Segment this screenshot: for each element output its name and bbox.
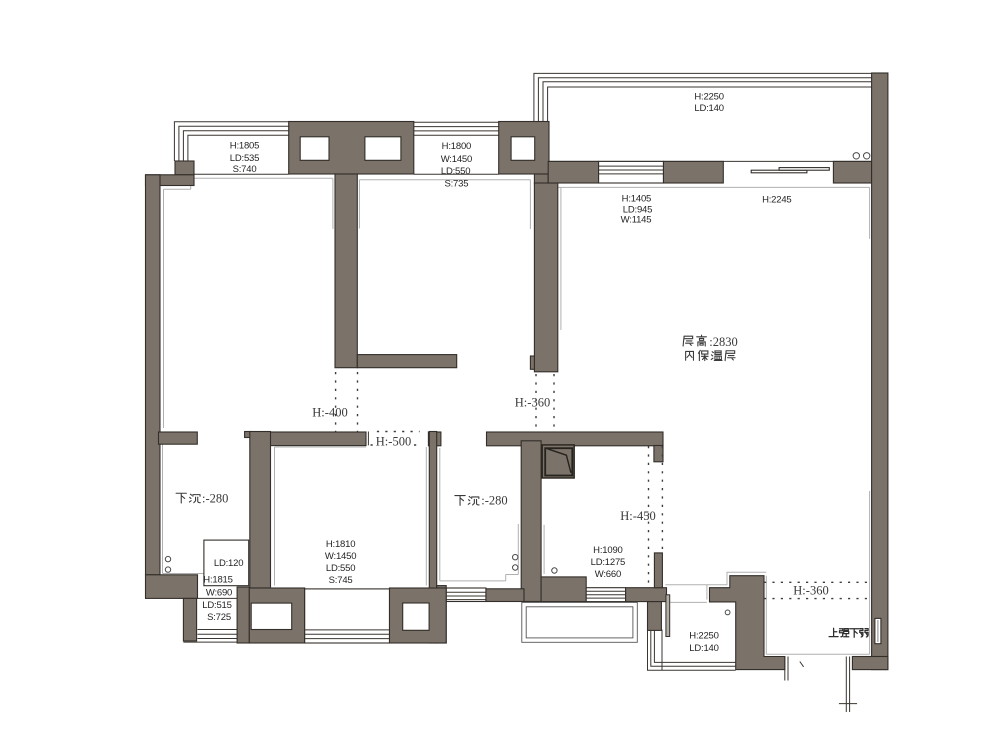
svg-text:LD:140: LD:140 <box>694 103 723 114</box>
svg-text:W:1450: W:1450 <box>325 551 356 562</box>
svg-text:H:-500: H:-500 <box>376 434 411 448</box>
svg-text:H:2250: H:2250 <box>694 92 723 103</box>
svg-text:H:2245: H:2245 <box>762 194 791 205</box>
svg-text:LD:1275: LD:1275 <box>591 557 626 568</box>
svg-text:LD:120: LD:120 <box>214 558 243 569</box>
svg-text:S:735: S:735 <box>444 178 468 189</box>
svg-text:LD:535: LD:535 <box>230 153 259 164</box>
svg-text:H:-400: H:-400 <box>312 406 347 420</box>
svg-text:LD:550: LD:550 <box>326 563 355 574</box>
svg-text:H:1090: H:1090 <box>593 545 622 556</box>
svg-text:H:-360: H:-360 <box>515 396 550 410</box>
svg-text:LD:515: LD:515 <box>202 600 231 611</box>
svg-text:S:725: S:725 <box>207 612 231 623</box>
svg-text:LD:550: LD:550 <box>441 166 470 177</box>
svg-text:H:1405: H:1405 <box>622 194 651 205</box>
svg-text:W:690: W:690 <box>206 587 232 598</box>
svg-text:W:1145: W:1145 <box>621 215 652 226</box>
svg-text::-280: :-280 <box>481 494 507 508</box>
svg-text:H:1805: H:1805 <box>230 141 259 152</box>
svg-text:LD:140: LD:140 <box>689 643 718 654</box>
svg-text:S:740: S:740 <box>233 164 257 175</box>
svg-text:W:660: W:660 <box>595 569 621 580</box>
svg-text:H:2250: H:2250 <box>689 631 718 642</box>
svg-text:H:1810: H:1810 <box>326 539 355 550</box>
svg-text:H:-360: H:-360 <box>793 583 828 597</box>
svg-text::2830: :2830 <box>709 335 737 349</box>
svg-text:H:1800: H:1800 <box>442 141 471 152</box>
svg-text:W:1450: W:1450 <box>441 154 472 165</box>
svg-text:H:-450: H:-450 <box>620 509 655 523</box>
svg-text::-280: :-280 <box>202 491 228 505</box>
svg-text:H:1815: H:1815 <box>203 575 232 586</box>
svg-text:S:745: S:745 <box>329 575 353 586</box>
